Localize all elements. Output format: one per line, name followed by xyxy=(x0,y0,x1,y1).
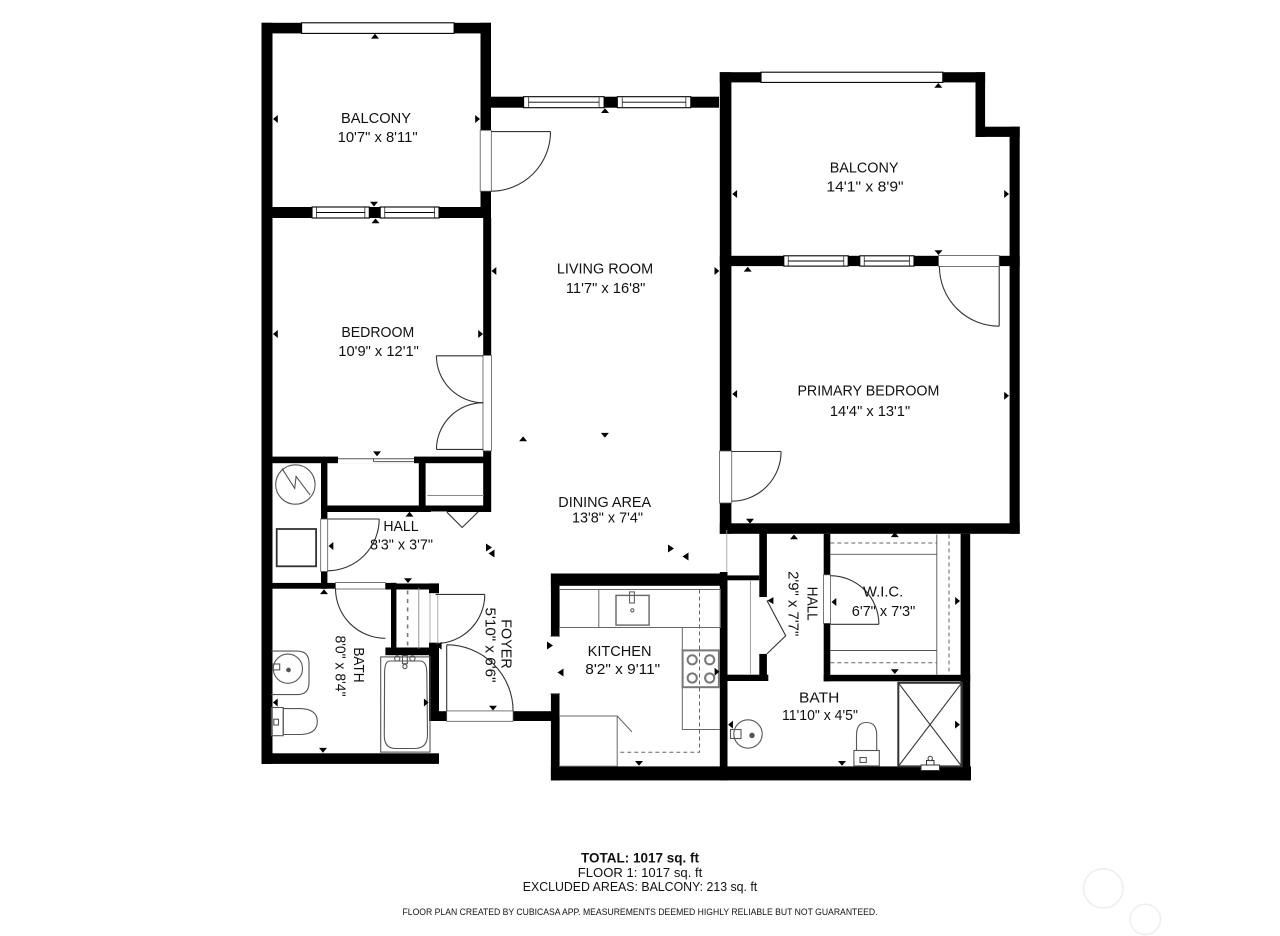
svg-text:FOYER: FOYER xyxy=(498,619,515,669)
svg-text:BATH: BATH xyxy=(799,690,839,707)
svg-text:8'3" x 3'7": 8'3" x 3'7" xyxy=(370,537,433,554)
svg-text:EXCLUDED AREAS: BALCONY: 213 s: EXCLUDED AREAS: BALCONY: 213 sq. ft xyxy=(523,880,758,894)
svg-text:2'9" x 7'7": 2'9" x 7'7" xyxy=(784,571,801,636)
svg-text:FLOOR 1: 1017 sq. ft: FLOOR 1: 1017 sq. ft xyxy=(578,865,703,880)
svg-text:10'9" x 12'1": 10'9" x 12'1" xyxy=(338,343,419,360)
svg-text:FLOOR PLAN CREATED BY CUBICASA: FLOOR PLAN CREATED BY CUBICASA APP. MEAS… xyxy=(403,907,878,917)
svg-text:10'7" x 8'11": 10'7" x 8'11" xyxy=(338,129,418,146)
svg-text:HALL: HALL xyxy=(383,518,418,535)
svg-text:13'8" x 7'4": 13'8" x 7'4" xyxy=(572,510,643,527)
svg-text:PRIMARY BEDROOM: PRIMARY BEDROOM xyxy=(797,383,939,400)
svg-text:BATH: BATH xyxy=(350,647,367,682)
svg-text:TOTAL: 1017 sq. ft: TOTAL: 1017 sq. ft xyxy=(581,851,699,866)
svg-text:KITCHEN: KITCHEN xyxy=(588,643,652,660)
svg-text:W.I.C.: W.I.C. xyxy=(863,583,903,600)
svg-text:11'10" x 4'5": 11'10" x 4'5" xyxy=(782,707,858,724)
svg-text:BEDROOM: BEDROOM xyxy=(341,324,414,341)
svg-text:14'4" x 13'1": 14'4" x 13'1" xyxy=(830,403,910,420)
svg-text:HALL: HALL xyxy=(804,587,821,621)
svg-text:BALCONY: BALCONY xyxy=(341,110,411,127)
svg-text:BALCONY: BALCONY xyxy=(830,159,899,176)
svg-text:8'2" x 9'11": 8'2" x 9'11" xyxy=(585,661,660,678)
svg-text:DINING AREA: DINING AREA xyxy=(558,494,651,511)
svg-text:5'10" x 6'6": 5'10" x 6'6" xyxy=(482,608,499,683)
svg-text:11'7" x 16'8": 11'7" x 16'8" xyxy=(566,280,646,297)
svg-text:8'0" x 8'4": 8'0" x 8'4" xyxy=(331,635,348,696)
svg-text:6'7" x 7'3": 6'7" x 7'3" xyxy=(852,603,916,620)
svg-text:14'1" x 8'9": 14'1" x 8'9" xyxy=(826,178,903,195)
svg-text:LIVING ROOM: LIVING ROOM xyxy=(557,261,653,278)
